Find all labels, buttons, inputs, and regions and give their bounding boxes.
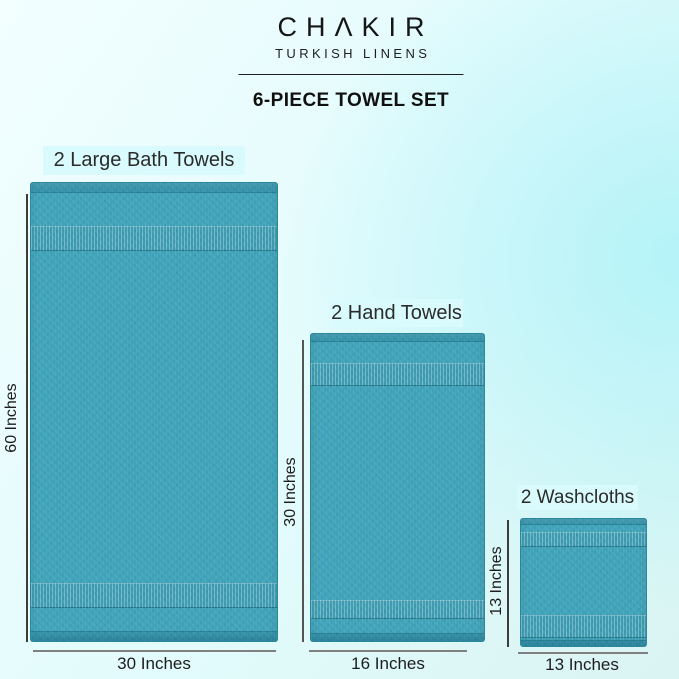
bath-width-dimension-line: [33, 650, 276, 652]
towel-bottom-border-band: [521, 615, 646, 638]
towel-top-border-band: [311, 363, 484, 386]
towel-top-border-band: [521, 532, 646, 547]
washcloth-image: [520, 518, 647, 647]
brand-subtitle: TURKISH LINENS: [272, 46, 431, 61]
towel-bottom-border-band: [311, 600, 484, 619]
header-divider: [239, 74, 464, 75]
bath-height-dimension-line: [26, 194, 28, 642]
washcloth-width-dimension-line: [518, 652, 648, 654]
washcloth-width-dimension-label: 13 Inches: [545, 655, 619, 675]
washcloth-height-dimension-label: 13 Inches: [488, 546, 506, 615]
towel-bottom-hem: [521, 640, 646, 646]
bath-towel-label: 2 Large Bath Towels: [43, 146, 245, 175]
towel-bottom-hem: [311, 633, 484, 641]
hand-towel-label: 2 Hand Towels: [330, 299, 463, 327]
product-title: 6-PIECE TOWEL SET: [253, 90, 449, 112]
bath-width-dimension-label: 30 Inches: [117, 654, 191, 674]
hand-width-dimension-label: 16 Inches: [351, 654, 425, 674]
towel-top-hem: [311, 334, 484, 342]
product-infographic: CHΛKIR TURKISH LINENS 6-PIECE TOWEL SET …: [0, 0, 679, 679]
washcloth-height-dimension-line: [507, 520, 509, 647]
brand-logo: CHΛKIR: [268, 13, 433, 43]
towel-top-hem: [31, 183, 277, 193]
towel-top-border-band: [31, 226, 277, 251]
hand-width-dimension-line: [309, 650, 467, 652]
hand-height-dimension-line: [302, 340, 304, 642]
bath-height-dimension-label: 60 Inches: [3, 383, 21, 452]
towel-top-hem: [521, 519, 646, 525]
washcloth-label: 2 Washcloths: [517, 485, 638, 510]
towel-bottom-border-band: [31, 583, 277, 608]
hand-towel-image: [310, 333, 485, 642]
bath-towel-image: [30, 182, 278, 642]
brand-header: CHΛKIR TURKISH LINENS 6-PIECE TOWEL SET: [239, 13, 464, 112]
towel-bottom-hem: [31, 631, 277, 641]
hand-height-dimension-label: 30 Inches: [282, 457, 300, 526]
